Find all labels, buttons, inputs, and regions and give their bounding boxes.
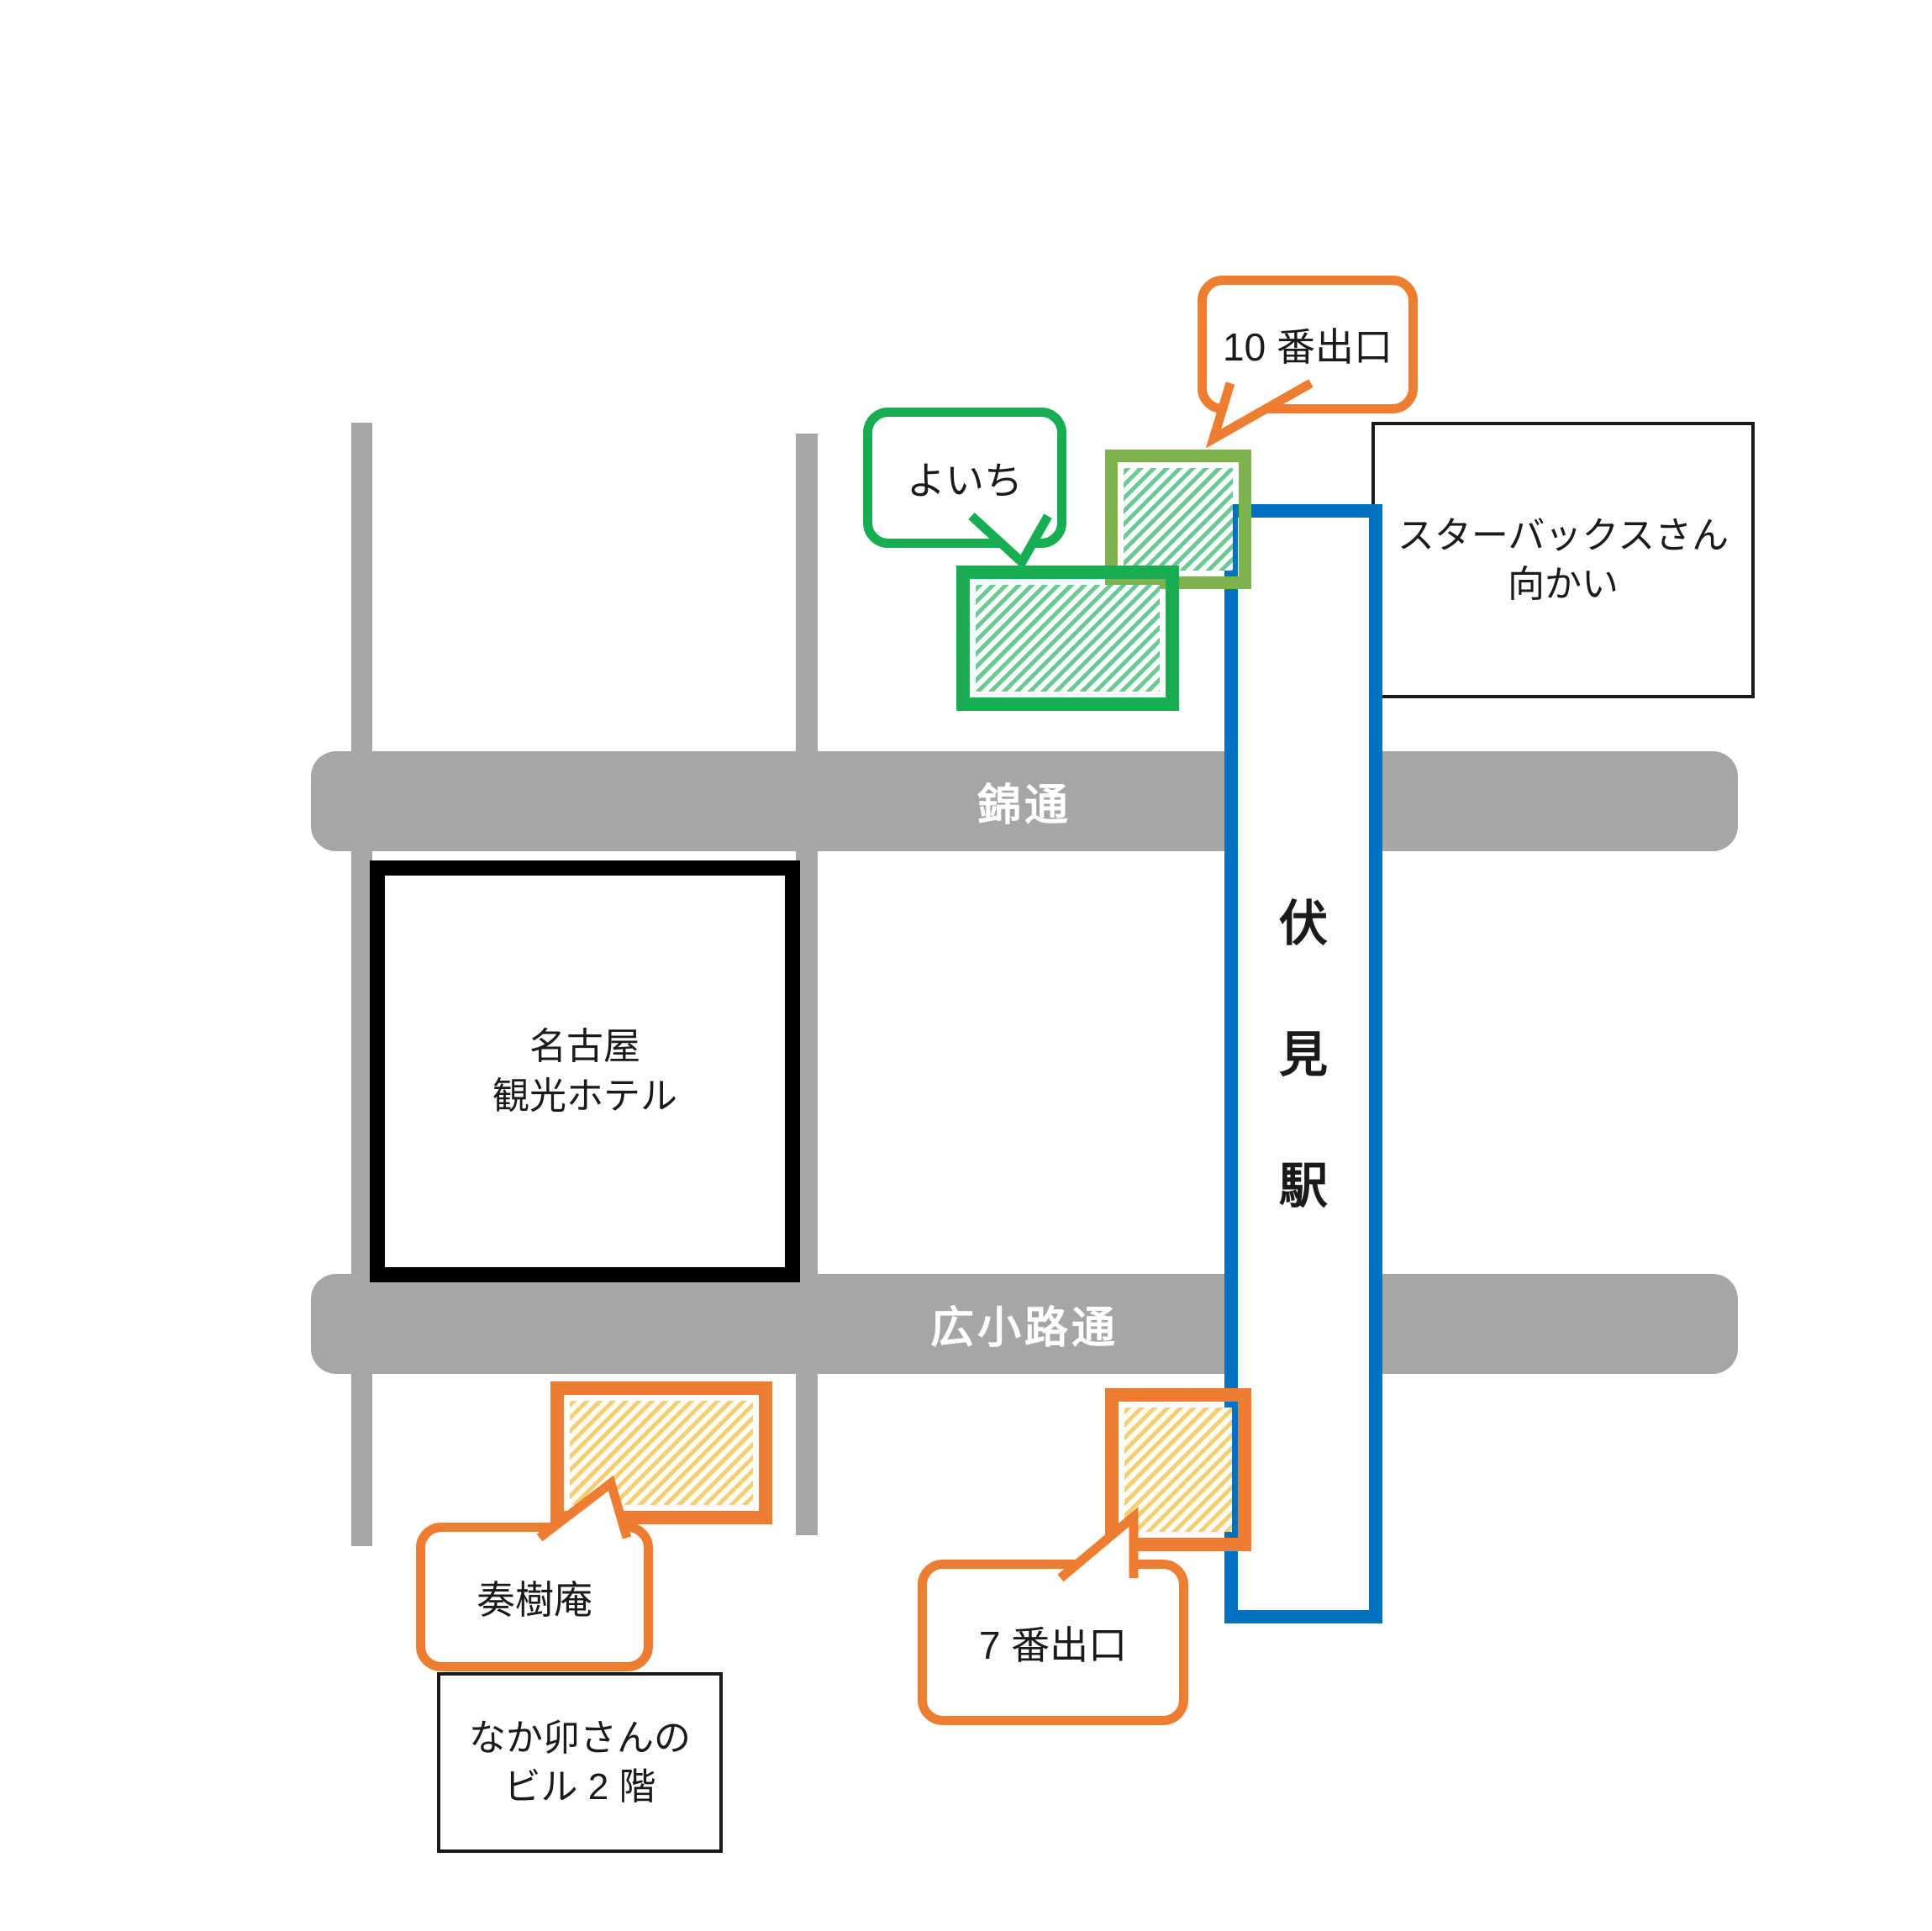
exit10-callout-label: 10 番出口 <box>1223 317 1392 372</box>
starbucks-note-line1: スターバックスさん <box>1398 512 1729 560</box>
nagoya-kanko-hotel-building: 名古屋 観光ホテル <box>370 860 800 1282</box>
exit10-callout: 10 番出口 <box>1198 276 1418 413</box>
nakau-note-box: なか卯さんの ビル 2 階 <box>437 1672 723 1853</box>
yoichi-callout-label: よいち <box>907 450 1023 506</box>
yoichi-building-marker <box>956 566 1179 711</box>
nishiki-street-label: 錦通 <box>977 770 1071 833</box>
yoichi-callout: よいち <box>863 408 1066 548</box>
nakau-note-line2: ビル 2 階 <box>504 1763 656 1811</box>
exit7-callout: 7 番出口 <box>918 1560 1188 1725</box>
soujuan-callout-label: 奏樹庵 <box>476 1570 592 1625</box>
exit7-marker <box>1105 1388 1251 1551</box>
nishiki-street: 錦通 <box>311 751 1738 851</box>
soujuan-callout: 奏樹庵 <box>416 1523 653 1671</box>
hirokoji-street: 広小路通 <box>311 1274 1738 1374</box>
hirokoji-street-label: 広小路通 <box>930 1292 1119 1355</box>
exit7-callout-label: 7 番出口 <box>979 1615 1127 1671</box>
soujuan-building-marker <box>550 1381 772 1524</box>
station-char-2: 見 <box>1279 1031 1328 1080</box>
access-map: 錦通 広小路通 名古屋 観光ホテル スターバックスさん 向かい なか卯さんの ビ… <box>0 0 1932 1931</box>
station-char-3: 駅 <box>1279 1162 1328 1211</box>
starbucks-note-line2: 向かい <box>1508 560 1619 608</box>
nakau-note-line1: なか卯さんの <box>469 1714 691 1762</box>
hotel-label-line2: 観光ホテル <box>492 1071 677 1121</box>
hotel-label-line1: 名古屋 <box>529 1022 640 1071</box>
starbucks-note-box: スターバックスさん 向かい <box>1371 422 1755 698</box>
station-char-1: 伏 <box>1279 900 1328 949</box>
